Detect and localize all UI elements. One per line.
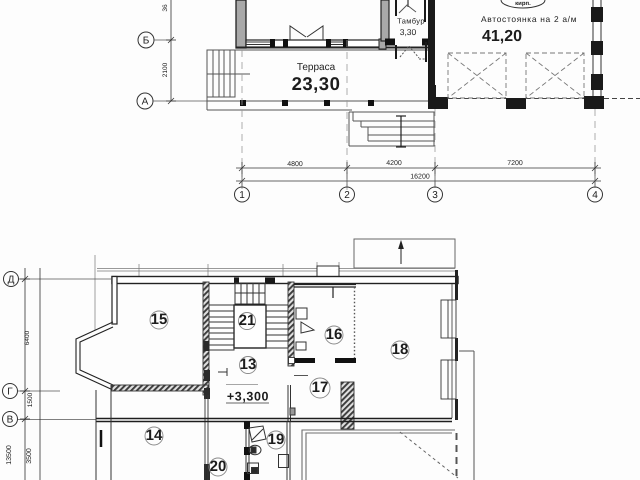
svg-text:кирп.: кирп. bbox=[515, 1, 531, 7]
svg-text:16200: 16200 bbox=[410, 174, 430, 181]
svg-text:6400: 6400 bbox=[24, 330, 31, 345]
svg-text:Терраса: Терраса bbox=[297, 62, 336, 73]
svg-text:36: 36 bbox=[162, 4, 169, 12]
svg-text:7200: 7200 bbox=[507, 160, 523, 167]
svg-text:3: 3 bbox=[432, 190, 438, 201]
svg-text:А: А bbox=[142, 97, 149, 108]
svg-text:Д: Д bbox=[8, 275, 15, 286]
svg-text:41,20: 41,20 bbox=[482, 28, 522, 45]
svg-text:4: 4 bbox=[592, 190, 598, 201]
svg-text:1: 1 bbox=[239, 190, 245, 201]
svg-text:17: 17 bbox=[312, 379, 329, 396]
svg-text:13500: 13500 bbox=[6, 445, 13, 465]
svg-text:2100: 2100 bbox=[162, 62, 169, 77]
svg-text:3500: 3500 bbox=[26, 448, 33, 464]
svg-text:Г: Г bbox=[7, 387, 13, 398]
svg-text:4200: 4200 bbox=[386, 160, 402, 167]
svg-text:4800: 4800 bbox=[287, 161, 303, 168]
svg-text:13: 13 bbox=[240, 356, 257, 373]
svg-text:18: 18 bbox=[392, 341, 409, 358]
svg-text:23,30: 23,30 bbox=[292, 73, 341, 94]
svg-text:16: 16 bbox=[326, 326, 343, 343]
svg-text:21: 21 bbox=[239, 312, 256, 329]
svg-text:1500: 1500 bbox=[27, 392, 34, 407]
svg-text:20: 20 bbox=[210, 458, 227, 475]
svg-text:В: В bbox=[7, 415, 14, 426]
svg-text:14: 14 bbox=[146, 427, 163, 444]
svg-text:+3,300: +3,300 bbox=[227, 390, 269, 404]
svg-text:2: 2 bbox=[344, 190, 350, 201]
svg-text:Тамбур: Тамбур bbox=[397, 17, 425, 26]
svg-text:Автостоянка на 2 а/м: Автостоянка на 2 а/м bbox=[481, 14, 577, 24]
svg-text:19: 19 bbox=[268, 431, 285, 448]
svg-text:Б: Б bbox=[143, 36, 150, 47]
svg-text:15: 15 bbox=[151, 311, 168, 328]
svg-text:3,30: 3,30 bbox=[400, 27, 417, 37]
